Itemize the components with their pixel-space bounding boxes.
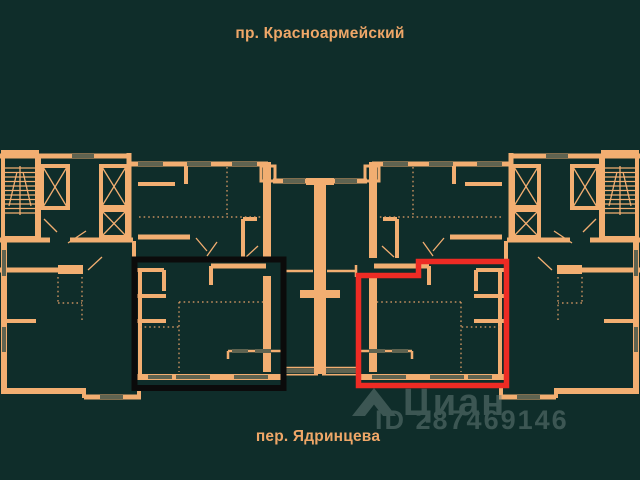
floor-plan-image: Циан ID 287469146 пр. Красноармейский пе…	[0, 0, 640, 480]
floor-plan-svg: Циан ID 287469146 пр. Красноармейский пе…	[0, 0, 640, 480]
expansion-joint-walls	[300, 178, 340, 374]
cian-watermark: Циан ID 287469146	[352, 382, 569, 435]
stairwell	[3, 152, 37, 238]
building-left-wing	[0, 152, 318, 398]
walls	[0, 153, 318, 398]
street-label-top: пр. Красноармейский	[235, 25, 404, 42]
street-label-bottom: пер. Ядринцева	[256, 428, 380, 445]
highlighted-apartment-outline-red	[359, 262, 507, 386]
watermark-listing-id: ID 287469146	[375, 405, 569, 435]
